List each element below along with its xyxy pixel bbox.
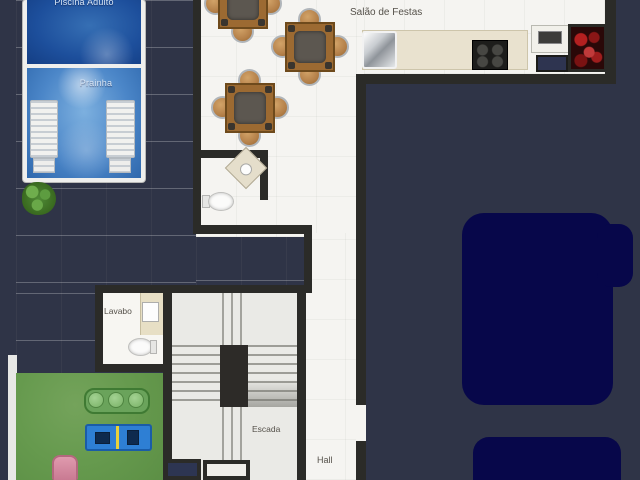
- wall: [95, 285, 103, 372]
- table-corner: [221, 19, 228, 26]
- microwave-door: [538, 31, 562, 44]
- table-center-line: [116, 426, 119, 449]
- sofa-cushion: [88, 392, 104, 408]
- wall: [260, 150, 268, 200]
- sun-lounger-foot: [33, 158, 55, 173]
- wall: [356, 74, 616, 84]
- game-goal: [127, 430, 139, 445]
- toilet: [208, 192, 234, 211]
- wall: [193, 225, 312, 234]
- table-corner: [258, 19, 265, 26]
- dark-roof-shape: [462, 213, 613, 405]
- dark-roof-shape: [473, 437, 621, 480]
- stair-steps: [172, 345, 220, 407]
- floorplan-canvas: Piscina Adulto Prainha: [0, 0, 640, 480]
- stair-steps: [222, 293, 247, 345]
- kitchen-cart: [536, 55, 568, 72]
- table-corner: [265, 123, 272, 130]
- pool-deck: [196, 233, 312, 293]
- pool-deck: [16, 293, 95, 375]
- stairs-label: Escada: [252, 424, 280, 434]
- table-corner: [228, 86, 235, 93]
- table-corner: [325, 62, 332, 69]
- sun-lounger-foot: [109, 158, 131, 173]
- foosball-table: [85, 424, 152, 451]
- table-top: [285, 22, 335, 72]
- table-top: [218, 0, 268, 29]
- wall: [356, 84, 366, 405]
- table-center: [294, 31, 326, 63]
- dining-table-set: [208, 66, 292, 150]
- kitchen-sink: [362, 31, 397, 69]
- microwave: [531, 25, 569, 53]
- stair-steps: [248, 345, 297, 407]
- stair-core: [220, 345, 248, 407]
- washroom-sink: [142, 302, 159, 322]
- hall-label: Hall: [317, 455, 333, 465]
- wall: [163, 285, 172, 480]
- wall: [304, 233, 312, 293]
- wall: [193, 0, 201, 233]
- toilet-tank: [150, 340, 157, 354]
- table-top: [225, 83, 275, 133]
- wall: [95, 285, 310, 293]
- plant-icon: [22, 182, 56, 215]
- stove-cooktop: [472, 40, 508, 70]
- pool-area: Piscina Adulto Prainha: [23, 0, 145, 182]
- garden-sofa: [84, 388, 150, 414]
- adult-pool-label: Piscina Adulto: [27, 0, 141, 7]
- door-opening: [356, 405, 366, 441]
- barbecue-grill: [568, 24, 607, 72]
- sink-basin: [238, 161, 255, 178]
- kids-pool-label: Prainha: [39, 78, 141, 88]
- wall: [95, 364, 170, 372]
- sofa-cushion: [108, 392, 124, 408]
- elevator-box: [164, 459, 201, 480]
- dark-roof-shape: [597, 224, 633, 287]
- hall-corridor-floor: [305, 233, 358, 480]
- table-corner: [288, 25, 295, 32]
- party-hall-label: Salão de Festas: [350, 7, 422, 18]
- sun-lounger: [30, 100, 58, 158]
- sun-lounger: [106, 100, 135, 158]
- game-goal: [95, 432, 110, 444]
- table-center: [227, 0, 259, 20]
- sofa-cushion: [128, 392, 144, 408]
- table-corner: [265, 86, 272, 93]
- table-center: [234, 92, 266, 124]
- washroom-label: Lavabo: [104, 306, 132, 316]
- wall: [356, 441, 366, 480]
- table-corner: [228, 123, 235, 130]
- wall: [605, 0, 616, 78]
- wall: [297, 293, 306, 480]
- pink-lounger: [52, 455, 78, 480]
- table-corner: [325, 25, 332, 32]
- entry-box: [203, 460, 250, 480]
- adult-pool: Piscina Adulto: [27, 0, 141, 64]
